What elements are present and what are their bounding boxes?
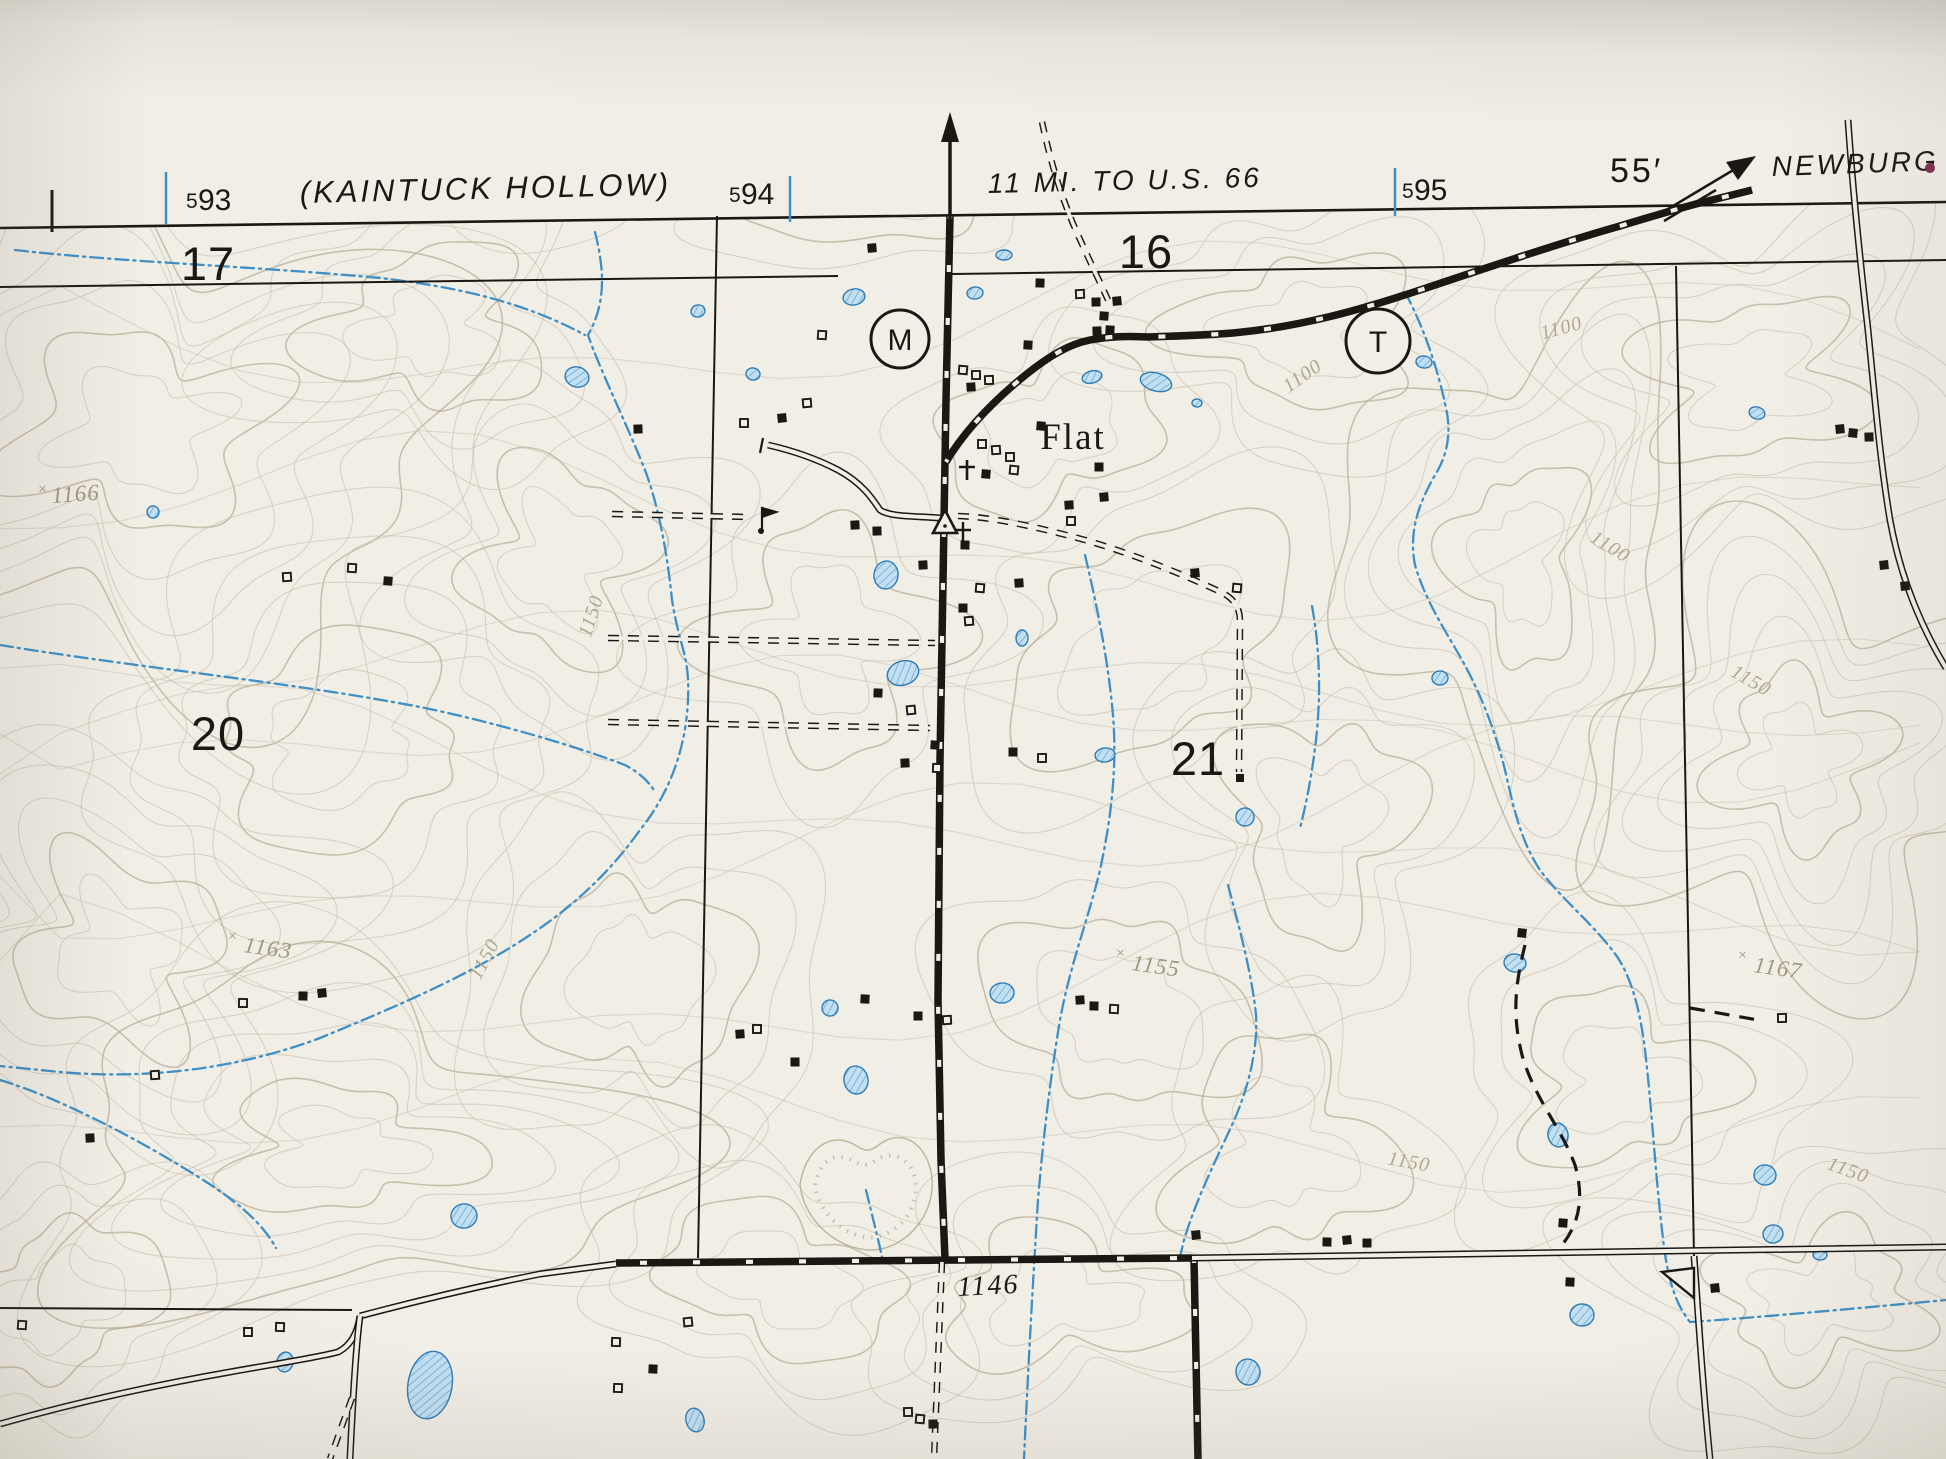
pond: [1762, 1224, 1785, 1245]
open-building-marker: [976, 584, 985, 593]
pond: [690, 303, 707, 318]
contour-line: [0, 1244, 126, 1356]
open-building-marker: [992, 446, 1001, 455]
building-marker: [1035, 278, 1044, 287]
route-marker-m: M: [871, 310, 929, 368]
building-marker: [1322, 1237, 1331, 1246]
contour-line: [81, 487, 599, 993]
contour-line: [1697, 660, 1903, 860]
intermittent-stream: [866, 1190, 882, 1257]
pond: [842, 287, 867, 307]
open-building-marker: [933, 764, 941, 772]
pond: [563, 364, 591, 390]
road-end-cap: [760, 438, 763, 453]
open-building-marker: [972, 371, 980, 379]
pond: [820, 998, 839, 1017]
church-cross-icon: [959, 460, 975, 480]
building-marker: [1864, 432, 1873, 441]
section-20-label: 20: [191, 707, 245, 760]
contour-label-1150: 1150: [1824, 1153, 1871, 1188]
pond: [842, 1064, 870, 1096]
building-marker: [1190, 568, 1200, 578]
pond: [1192, 399, 1203, 408]
contour-line: [343, 275, 501, 376]
pond: [1081, 369, 1103, 386]
contour-line: [0, 281, 350, 580]
pond: [1753, 1164, 1777, 1186]
open-building-marker: [612, 1338, 620, 1346]
us66-distance-label: 11 MI. TO U.S. 66: [987, 162, 1262, 199]
open-building-marker: [818, 331, 827, 340]
building-marker: [860, 994, 869, 1003]
west-dirt-track-2-inner: [608, 638, 935, 643]
contour-line: [38, 366, 241, 493]
contour-line: [0, 332, 300, 528]
building-marker: [317, 988, 327, 998]
building-marker: [1075, 995, 1085, 1005]
southwest-connector-road: [360, 1264, 616, 1316]
open-building-marker: [151, 1071, 160, 1080]
spot-1167: 1167: [1752, 952, 1804, 984]
contour-label-1150: 1150: [465, 935, 504, 983]
building-marker: [928, 1419, 937, 1428]
contour-label-1100: 1100: [1279, 355, 1326, 397]
minute-label: 55′: [1610, 152, 1663, 190]
open-building-marker: [1110, 1005, 1118, 1013]
building-marker: [1091, 297, 1100, 306]
building-marker: [1099, 311, 1109, 321]
contour-line: [798, 141, 1001, 220]
contour-line: [1658, 616, 1943, 903]
open-building-marker: [1778, 1014, 1786, 1022]
pond: [745, 367, 761, 381]
grid-label-594: 94: [741, 178, 774, 211]
contour-line: [363, 64, 569, 176]
building-marker: [85, 1133, 94, 1142]
building-marker: [1558, 1218, 1568, 1228]
route-marker-t-label: T: [1369, 326, 1387, 359]
newburg-dot-icon: [1925, 163, 1935, 173]
south-branch-road: [1194, 1259, 1198, 1459]
map-feature: [815, 1156, 916, 1238]
contour-line: [1368, 369, 1636, 782]
spot-1146: 1146: [957, 1269, 1020, 1303]
pond: [146, 505, 160, 519]
building-marker: [383, 576, 393, 586]
building-marker: [1879, 560, 1889, 570]
intermittent-stream: [1405, 292, 1690, 1322]
building-marker: [1517, 928, 1527, 938]
building-marker: [1092, 326, 1101, 335]
contour-line: [1594, 536, 1946, 983]
contour-line: [521, 873, 759, 1087]
southwest-road-inner: [0, 1316, 360, 1424]
junction-triangle-icon: [933, 510, 957, 533]
contour-label-1100: 1100: [1586, 526, 1634, 567]
section-line: [0, 276, 838, 287]
contour-label-1150: 1150: [574, 593, 608, 640]
contour-line: [0, 725, 393, 1176]
building-marker: [1342, 1235, 1352, 1245]
pond: [1431, 670, 1449, 686]
contour-line: [405, 404, 716, 716]
contour-line: [1466, 502, 1564, 626]
contour-line: [1700, 1212, 1940, 1388]
building-marker: [1009, 748, 1018, 757]
building-marker: [735, 1029, 745, 1039]
pond: [884, 657, 922, 690]
building-marker: [1565, 1277, 1574, 1286]
open-building-marker: [1038, 754, 1046, 762]
building-marker: [850, 520, 859, 529]
spot-1155: 1155: [1130, 950, 1181, 981]
pond: [1570, 1304, 1594, 1326]
open-building-marker: [753, 1025, 761, 1033]
pond: [989, 982, 1014, 1004]
contour-line: [0, 1213, 171, 1387]
open-building-marker: [959, 366, 968, 375]
pond: [966, 286, 983, 300]
contour-line: [1543, 1146, 1946, 1453]
route-marker-t: T: [1346, 309, 1410, 373]
contour-line: [1622, 574, 1946, 945]
building-marker: [900, 758, 909, 767]
intermittent-stream: [1024, 555, 1114, 1459]
contour-line: [0, 893, 1920, 1040]
open-building-marker: [803, 399, 812, 408]
open-building-marker: [239, 999, 247, 1007]
open-building-marker: [283, 573, 292, 582]
contour-line: [271, 669, 409, 810]
intermittent-stream: [1690, 1300, 1946, 1322]
contour-line: [231, 200, 585, 449]
contour-line: [1110, 975, 1466, 1280]
contour-line: [1747, 1245, 1893, 1356]
spot-1166: 1166: [51, 480, 101, 508]
building-marker: [959, 604, 968, 613]
junction-dot-icon: [943, 524, 947, 528]
open-building-marker: [276, 1323, 284, 1331]
building-marker: [930, 740, 940, 750]
contour-line: [225, 0, 673, 254]
section-17-label: 17: [181, 237, 235, 290]
open-building-marker: [943, 1016, 951, 1024]
spot-1163: 1163: [242, 932, 293, 963]
building-marker: [1099, 492, 1109, 502]
flag-icon: [762, 508, 776, 530]
building-marker: [1089, 1001, 1098, 1010]
spot-x-1166: ×: [38, 481, 47, 498]
pond: [1094, 747, 1116, 763]
pond: [1748, 405, 1767, 421]
grid-label-595: 95: [1414, 174, 1447, 207]
building-marker: [1191, 1230, 1201, 1240]
foot-trail-east: [1690, 1008, 1758, 1020]
open-building-marker: [904, 1408, 912, 1416]
open-building-marker: [18, 1321, 27, 1330]
contour-line: [265, 1105, 434, 1188]
building-marker: [1105, 325, 1114, 334]
building-marker: [298, 991, 307, 1000]
building-marker: [648, 1364, 657, 1373]
building-marker: [633, 424, 642, 433]
spot-x-1155: ×: [1116, 945, 1125, 962]
section-16-label: 16: [1119, 225, 1173, 278]
newburg-label: NEWBURG: [1771, 145, 1939, 182]
building-marker: [1835, 424, 1845, 434]
contour-line: [38, 941, 730, 1328]
contour-line: [851, 1152, 1306, 1423]
road-layer: [0, 120, 1946, 1459]
spot-x-1167: ×: [1738, 947, 1747, 964]
contour-line: [0, 798, 280, 1102]
contour-line: [1432, 468, 1592, 670]
building-marker: [872, 526, 881, 535]
pond: [683, 1406, 707, 1434]
building-marker: [873, 688, 882, 697]
route-marker-m-label: M: [888, 324, 913, 357]
building-marker: [960, 540, 969, 549]
contour-line: [1213, 724, 1432, 952]
building-marker: [867, 243, 877, 253]
open-building-marker: [684, 1318, 693, 1327]
open-building-marker: [614, 1384, 622, 1392]
contour-line: [697, 1231, 864, 1329]
building-marker: [1023, 340, 1032, 349]
building-marker: [914, 1012, 923, 1021]
contour-line: [1010, 508, 1290, 772]
town-label-flat: Flat: [1040, 417, 1106, 458]
open-building-marker: [985, 376, 993, 384]
building-marker: [1095, 463, 1104, 472]
building-marker: [777, 413, 787, 423]
section-21-label: 21: [1171, 732, 1225, 785]
south-section-road: [616, 1258, 1192, 1263]
contour-line: [1737, 702, 1862, 817]
contour-line: [455, 792, 826, 1168]
contour-line: [58, 874, 182, 1026]
north-arrow-icon: [941, 112, 959, 222]
pond: [996, 250, 1012, 260]
pond: [402, 1348, 457, 1423]
building-marker: [918, 560, 927, 569]
south-east-road-inner: [1192, 1247, 1946, 1258]
open-building-marker: [916, 1415, 925, 1424]
building-marker: [1710, 1283, 1720, 1293]
contour-line: [1581, 254, 1918, 506]
open-building-marker: [244, 1328, 252, 1336]
intermittent-stream: [0, 645, 655, 792]
open-building-marker: [740, 419, 748, 427]
contour-line: [226, 625, 454, 855]
open-building-marker: [1233, 584, 1242, 593]
contour-line: [286, 242, 542, 411]
flag-base-icon: [758, 528, 764, 534]
section-line: [0, 1308, 352, 1310]
contour-line: [70, 983, 679, 1291]
contour-line: [17, 902, 768, 1367]
grid-label-595-prefix: 5: [1402, 180, 1414, 203]
building-marker: [981, 469, 991, 479]
section-line: [698, 216, 717, 1258]
grid-label-593: 93: [198, 184, 231, 217]
open-building-marker: [348, 564, 357, 573]
contour-line: [1556, 1026, 1703, 1134]
contour-line: [1454, 891, 1853, 1254]
contour-line: [213, 1078, 492, 1212]
building-marker: [791, 1058, 800, 1067]
kaintuck-hollow-label: (KAINTUCK HOLLOW): [299, 167, 671, 210]
building-marker: [1112, 296, 1122, 306]
building-marker: [1014, 578, 1024, 588]
grid-label-593-prefix: 5: [186, 190, 198, 213]
open-building-marker: [1010, 466, 1019, 475]
topo-map-canvas: M T 5 93 5 94 5 95 (KAINTUCK HOLLOW) 11 …: [0, 0, 1946, 1459]
open-building-marker: [1067, 517, 1075, 525]
contour-line: [1398, 421, 1616, 724]
open-building-marker: [965, 617, 974, 626]
spot-x-1163: ×: [228, 928, 237, 945]
map-photo: M T 5 93 5 94 5 95 (KAINTUCK HOLLOW) 11 …: [0, 0, 1946, 1459]
pond: [1233, 1357, 1262, 1388]
open-building-marker: [1076, 290, 1084, 298]
open-building-marker: [978, 440, 986, 448]
contour-line: [915, 880, 1324, 1141]
building-marker: [1064, 500, 1074, 510]
contour-line: [609, 1160, 950, 1399]
road-end-marker: [1236, 774, 1244, 782]
open-building-marker: [1006, 453, 1014, 461]
pond: [1415, 355, 1432, 369]
contour-label-1100: 1100: [1538, 312, 1585, 344]
building-marker: [1848, 428, 1858, 438]
open-building-marker: [907, 706, 916, 715]
building-marker: [1900, 581, 1910, 591]
grid-label-594-prefix: 5: [729, 184, 741, 207]
intermittent-stream: [0, 232, 688, 1074]
pond: [1016, 630, 1028, 646]
contour-line: [564, 915, 716, 1046]
contour-line: [1256, 758, 1389, 907]
building-marker: [1363, 1239, 1372, 1248]
building-marker: [966, 382, 976, 392]
